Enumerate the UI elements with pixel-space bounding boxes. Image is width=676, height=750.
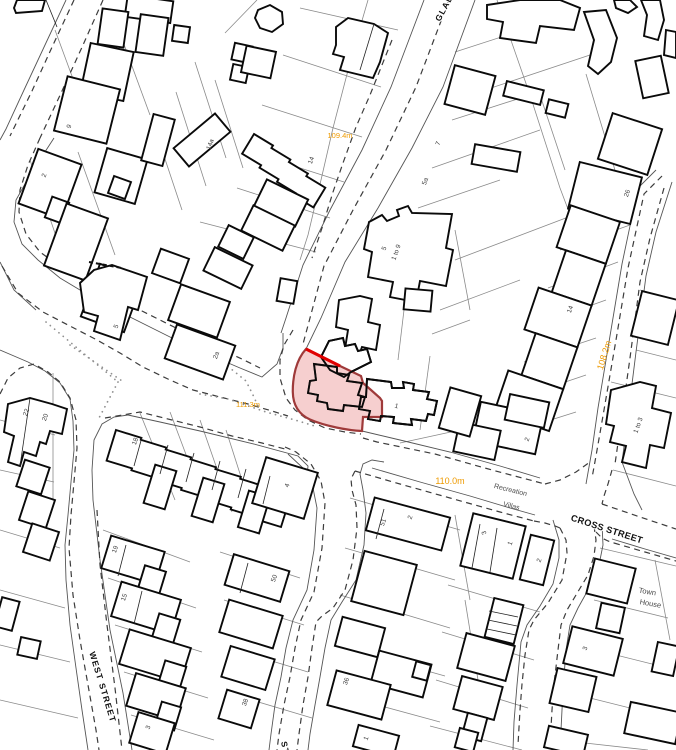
svg-text:109.4m: 109.4m — [327, 131, 352, 140]
svg-text:110.0m: 110.0m — [435, 476, 464, 486]
svg-text:111.3m: 111.3m — [236, 400, 260, 409]
